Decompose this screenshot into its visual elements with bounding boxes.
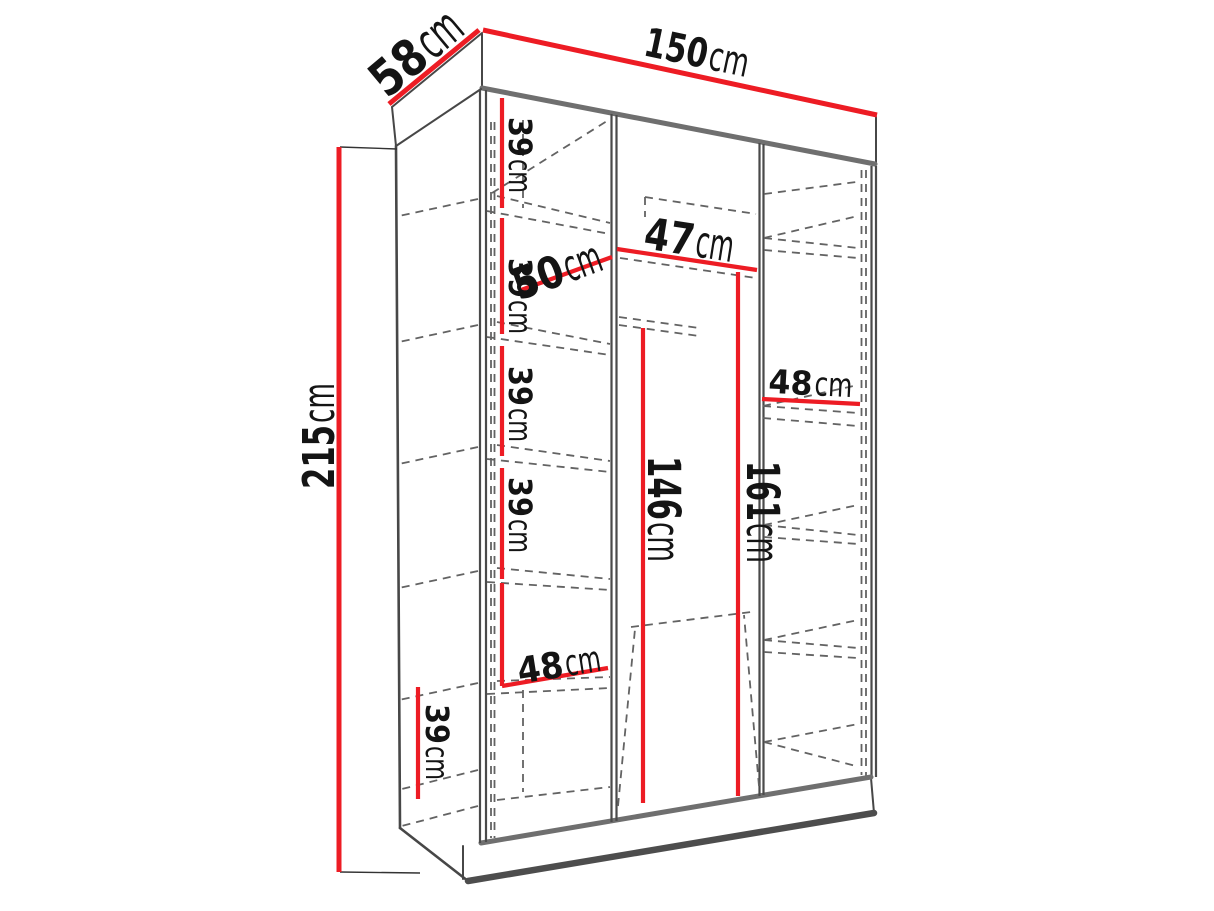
- dim-shelf3-39-label: 39cm: [501, 366, 539, 442]
- partition-left: [612, 114, 617, 822]
- dim-height-215-label: 215cm: [294, 383, 345, 489]
- dim-depth-58-label: 58cm: [358, 0, 475, 109]
- left-column-shelves-dashed: [487, 120, 610, 800]
- dim-hang-146-label: 146cm: [637, 456, 690, 562]
- dim-bottom-width-48-label: 48cm: [515, 639, 604, 693]
- left-front-post: [480, 89, 495, 843]
- diagram-canvas: 58cm 150cm 215cm 39cm 39cm 39cm 39cm 50c…: [0, 0, 1214, 911]
- dim-shelf4-39-label: 39cm: [501, 477, 539, 553]
- wardrobe-dimension-diagram: 58cm 150cm 215cm 39cm 39cm 39cm 39cm 50c…: [0, 0, 1214, 911]
- dim-height-215-line: [339, 147, 420, 873]
- dim-bottom-height-39-label: 39cm: [418, 704, 456, 780]
- base-plinth: [468, 777, 874, 881]
- dim-right-width-48-label: 48cm: [768, 362, 854, 405]
- dim-shelf1-39-label: 39cm: [501, 117, 539, 193]
- dim-width-150-label: 150cm: [640, 20, 753, 87]
- dim-hang-161-label: 161cm: [736, 461, 789, 563]
- dim-left-width-50-label: 50cm: [505, 232, 609, 311]
- right-side-wall: [862, 166, 877, 813]
